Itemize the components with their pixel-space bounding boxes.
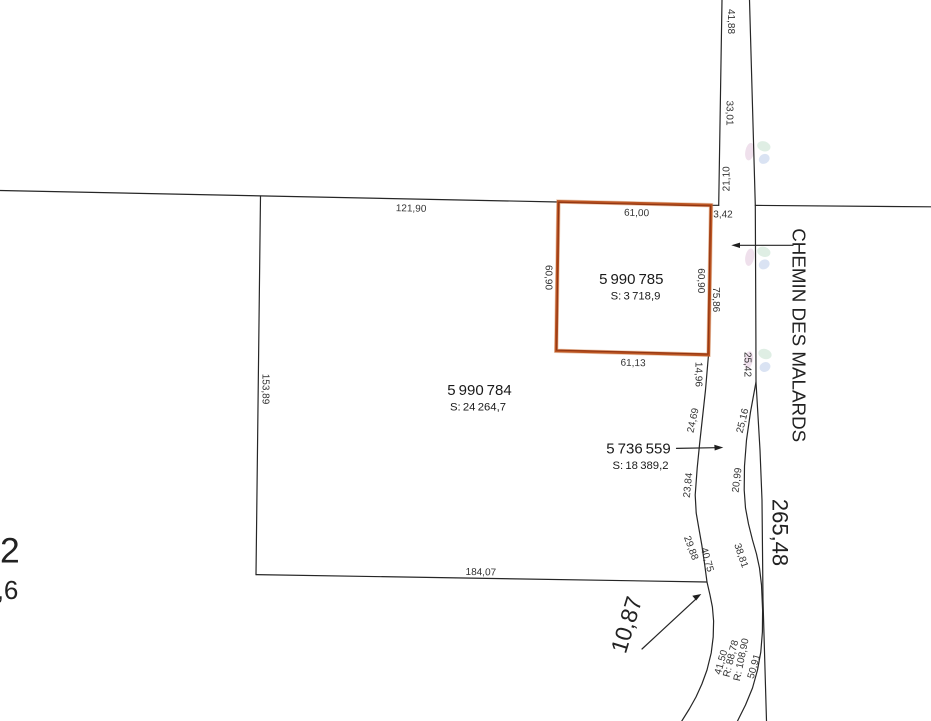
svg-text:33,01: 33,01 xyxy=(724,100,735,125)
svg-text:3,42: 3,42 xyxy=(713,209,733,220)
svg-text:S: 3 718,9: S: 3 718,9 xyxy=(611,291,661,303)
svg-text:25,42: 25,42 xyxy=(742,352,753,377)
svg-text:41,88: 41,88 xyxy=(725,9,736,34)
svg-text:121,90: 121,90 xyxy=(396,203,427,215)
svg-text:75,86: 75,86 xyxy=(710,287,721,312)
svg-text:21,10: 21,10 xyxy=(721,166,732,191)
svg-text:60,90: 60,90 xyxy=(695,268,706,293)
svg-text:265,48: 265,48 xyxy=(767,499,792,566)
svg-text:S: 24 264,7: S: 24 264,7 xyxy=(450,401,506,413)
svg-text:S: 18 389,2: S: 18 389,2 xyxy=(612,460,668,472)
svg-text:184,07: 184,07 xyxy=(465,567,496,579)
svg-text:153,89: 153,89 xyxy=(259,374,270,405)
svg-text:CHEMIN DES MALARDS: CHEMIN DES MALARDS xyxy=(789,228,810,442)
svg-text:5 990 785: 5 990 785 xyxy=(599,271,663,288)
svg-text:2: 2 xyxy=(0,531,20,571)
svg-text:14,96: 14,96 xyxy=(692,362,703,387)
svg-text:61,13: 61,13 xyxy=(620,358,646,370)
svg-text:60,90: 60,90 xyxy=(543,265,554,290)
svg-text:5 736 559: 5 736 559 xyxy=(606,441,670,458)
svg-text:61,00: 61,00 xyxy=(624,208,650,220)
svg-text:5 990 784: 5 990 784 xyxy=(447,382,511,399)
svg-text:,6: ,6 xyxy=(0,575,18,605)
